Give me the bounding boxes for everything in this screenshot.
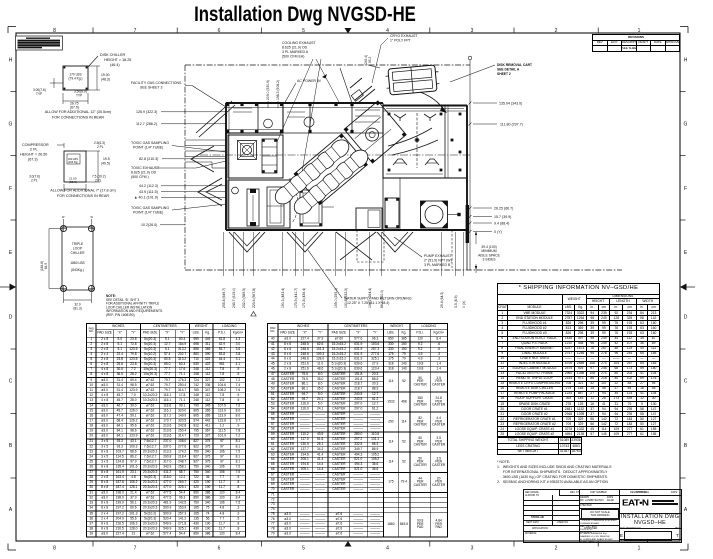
svg-text:2 PL: 2 PL (31, 179, 38, 183)
svg-text:8.625 (21.9) OD: 8.625 (21.9) OD (131, 171, 157, 175)
svg-text:43.9 (111.5): 43.9 (111.5) (139, 190, 158, 194)
svg-text:HEIGHT = 26.50: HEIGHT = 26.50 (20, 153, 47, 157)
svg-text:(49.5): (49.5) (101, 162, 110, 166)
svg-text:2 PL: 2 PL (97, 145, 104, 149)
svg-text:ALLOW FOR ADDITIONAL 7” (17.8: ALLOW FOR ADDITIONAL 7” (17.8 cm) (50, 189, 115, 193)
svg-text:(204 Kg): (204 Kg) (68, 160, 78, 164)
svg-text:111.80 (297.7): 111.80 (297.7) (500, 123, 523, 127)
svg-text:(500 CFM EA): (500 CFM EA) (282, 55, 304, 59)
svg-text:FOR CONNECTIONS IN REAR: FOR CONNECTIONS IN REAR (57, 194, 109, 198)
svg-text:(46.4): (46.4) (110, 63, 120, 67)
svg-text:112.7 (286.2): 112.7 (286.2) (136, 122, 157, 126)
svg-text:8.625 (21.9) OD: 8.625 (21.9) OD (282, 46, 308, 50)
svg-text:▲ 40.1 (101.9): ▲ 40.1 (101.9) (134, 196, 158, 200)
svg-text:(843Kg.): (843Kg.) (71, 268, 84, 272)
svg-text:9.4 (88.4): 9.4 (88.4) (494, 222, 509, 226)
svg-text:82.8 (210.3): 82.8 (210.3) (139, 157, 158, 161)
svg-text:W: W (62, 215, 65, 219)
svg-text:2 PL: 2 PL (95, 179, 102, 183)
svg-text:(79.4 Kg.): (79.4 Kg.) (69, 77, 83, 81)
svg-text:243.7 (619.0): 243.7 (619.0) (232, 288, 236, 308)
svg-text:25.4 (64.5): 25.4 (64.5) (440, 292, 444, 308)
svg-text:E: E (684, 250, 688, 256)
svg-text:223.6 (567.8): 223.6 (567.8) (252, 288, 256, 308)
svg-text:FOR CONNECTIONS IN REAR: FOR CONNECTIONS IN REAR (52, 116, 104, 120)
svg-text:(249.4): (249.4) (364, 55, 368, 65)
svg-text:255.8 (649.7): 255.8 (649.7) (222, 288, 226, 308)
svg-text:TOXIC GAS SAMPLING: TOXIC GAS SAMPLING (131, 206, 169, 210)
svg-text:159.0 (255.1): 159.0 (255.1) (334, 288, 338, 308)
svg-text:4: 4 (386, 546, 389, 552)
svg-text:W: W (91, 215, 94, 219)
svg-text:3 PL MARKED A: 3 PL MARKED A (282, 50, 309, 54)
svg-text:(67.3): (67.3) (28, 158, 38, 162)
svg-text:209.0 (530.9): 209.0 (530.9) (266, 80, 270, 100)
svg-text:(REF. P/N 1608190): (REF. P/N 1608190) (106, 313, 135, 317)
svg-text:8: 8 (53, 28, 56, 34)
svg-text:19.00: 19.00 (101, 73, 110, 77)
svg-text:2: 2 (555, 28, 558, 34)
svg-text:SEE SHEET 3: SEE SHEET 3 (140, 86, 163, 90)
svg-text:(67.9): (67.9) (70, 106, 79, 110)
svg-text:SEE DETAIL A: SEE DETAIL A (497, 68, 520, 72)
svg-text:6: 6 (218, 28, 221, 34)
svg-text:130.8 (332.3): 130.8 (332.3) (344, 288, 348, 308)
svg-text:64.5: 64.5 (44, 263, 48, 269)
svg-text:3: 3 (471, 546, 474, 552)
svg-text:PUMP EXHAUST: PUMP EXHAUST (424, 254, 452, 258)
svg-text:3.5 (8.9): 3.5 (8.9) (454, 295, 458, 308)
svg-text:A: A (9, 507, 13, 513)
svg-text:(53.3): (53.3) (69, 180, 77, 184)
svg-text:(164.6): (164.6) (40, 261, 44, 271)
svg-text:CRYO EXHAUST: CRYO EXHAUST (390, 34, 418, 38)
svg-text:44.2 (112.3): 44.2 (112.3) (139, 184, 158, 188)
svg-text:1” POLY FPT: 1” POLY FPT (390, 39, 412, 43)
svg-text:104.1 (264.4): 104.1 (264.4) (368, 288, 372, 308)
svg-text:TOXIC EXHAUST: TOXIC EXHAUST (131, 166, 160, 170)
svg-text:(81.3): (81.3) (73, 307, 81, 311)
svg-text:2 PL: 2 PL (30, 148, 38, 152)
svg-text:TOXIC GAS SAMPLING: TOXIC GAS SAMPLING (131, 141, 169, 145)
svg-text:7: 7 (134, 28, 137, 34)
svg-text:(48.3): (48.3) (101, 78, 110, 82)
svg-text:8: 8 (53, 546, 56, 552)
svg-text:D: D (9, 314, 13, 320)
svg-text:198.3 (508.2): 198.3 (508.2) (276, 80, 280, 100)
svg-text:7: 7 (134, 546, 137, 552)
svg-text:1: 1 (638, 546, 641, 552)
svg-text:DISK REMOVAL CART: DISK REMOVAL CART (497, 63, 532, 67)
svg-text:LOOP: LOOP (73, 247, 83, 251)
svg-text:2: 2 (555, 546, 558, 552)
svg-text:HEIGHT = 18.25: HEIGHT = 18.25 (104, 58, 131, 62)
svg-text:D: D (684, 314, 688, 320)
svg-text:4: 4 (386, 28, 389, 34)
svg-text:3: 3 (471, 28, 474, 34)
svg-text:3 SIDES: 3 SIDES (482, 258, 496, 262)
svg-text:ALLOW FOR ADDITIONAL 12” (30.5: ALLOW FOR ADDITIONAL 12” (30.5cm) (45, 110, 111, 114)
svg-text:E: E (9, 250, 13, 256)
svg-text:A: A (684, 507, 688, 513)
svg-text:DISK CHILLER: DISK CHILLER (100, 53, 126, 57)
svg-text:5: 5 (302, 546, 305, 552)
svg-text:POINT (1/4” TUBE): POINT (1/4” TUBE) (133, 146, 163, 150)
svg-text:G: G (9, 121, 13, 127)
svg-text:H: H (684, 57, 688, 63)
svg-text:G: G (684, 121, 688, 127)
svg-text:POINT (1/4” TUBE): POINT (1/4” TUBE) (133, 211, 163, 215)
svg-text:173.9 (441.7): 173.9 (441.7) (294, 288, 298, 308)
svg-text:TRIPLE: TRIPLE (72, 242, 84, 246)
svg-text:26.25 (66.7): 26.25 (66.7) (494, 207, 513, 211)
svg-text:1860 LBS: 1860 LBS (70, 261, 85, 265)
svg-text:SHEET 2: SHEET 2 (497, 72, 511, 76)
svg-text:F: F (9, 186, 12, 192)
svg-text:5: 5 (302, 28, 305, 34)
svg-text:6: 6 (218, 546, 221, 552)
svg-text:15.7 (39.9): 15.7 (39.9) (494, 215, 511, 219)
svg-text:190.3 (483.4): 190.3 (483.4) (281, 288, 285, 308)
svg-text:86.6 (220.0): 86.6 (220.0) (380, 290, 384, 308)
svg-text:TYP: TYP (76, 94, 82, 98)
svg-text:10.2(26.0): 10.2(26.0) (141, 223, 157, 227)
svg-text:171.8 (436.4): 171.8 (436.4) (302, 288, 306, 308)
svg-text:3 PL MARKED B: 3 PL MARKED B (424, 263, 451, 267)
svg-text:0 (X): 0 (X) (462, 301, 466, 308)
svg-text:2” (51.0) NPT (W): 2” (51.0) NPT (W) (424, 259, 452, 263)
svg-text:F: F (684, 186, 687, 192)
svg-text:B: B (684, 443, 688, 449)
svg-text:TYP: TYP (36, 92, 42, 96)
svg-text:C: C (9, 378, 13, 384)
svg-text:AC POWER IN: AC POWER IN (297, 79, 321, 83)
svg-text:H: H (9, 57, 13, 63)
svg-text:COOLING EXHAUST: COOLING EXHAUST (282, 41, 317, 45)
svg-text:C: C (684, 378, 688, 384)
svg-text:95.2: 95.2 (368, 57, 372, 63)
svg-text:(500 CFM ): (500 CFM ) (131, 175, 149, 179)
svg-text:19.5: 19.5 (103, 157, 110, 161)
svg-text:B: B (9, 443, 13, 449)
svg-text:126.9 (322.3): 126.9 (322.3) (136, 110, 157, 114)
svg-text:COMPRESSOR: COMPRESSOR (22, 143, 49, 147)
svg-text:0 (Y): 0 (Y) (494, 230, 502, 234)
svg-text:FACILITY GAS CONNECTIONS: FACILITY GAS CONNECTIONS (131, 81, 182, 85)
svg-text:135.04 (343.0): 135.04 (343.0) (499, 102, 522, 106)
svg-text:WATER SUPPLY AND RETURN OPENIN: WATER SUPPLY AND RETURN OPENING (344, 297, 412, 301)
svg-text:CHILLER: CHILLER (71, 251, 86, 255)
svg-text:232.0 (589.5): 232.0 (589.5) (242, 288, 246, 308)
